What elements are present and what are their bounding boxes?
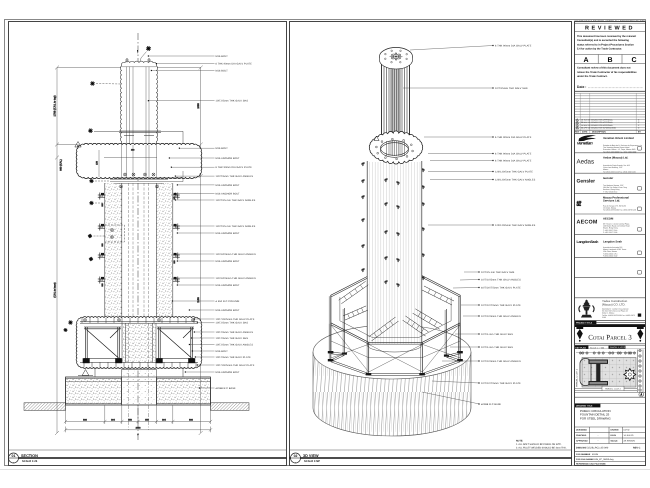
svg-text:120/T/5mm THK GALV ANGLES: 120/T/5mm THK GALV ANGLES <box>216 175 254 178</box>
svg-text:T +852 2508 3700: T +852 2508 3700 <box>603 190 617 193</box>
svg-text:10/T/25mm THK GALV SHS: 10/T/25mm THK GALV SHS <box>495 87 528 90</box>
svg-text:⌀2988 R.C BASE: ⌀2988 R.C BASE <box>481 403 502 406</box>
svg-text:DWG NO: DWG NO <box>576 447 586 450</box>
svg-text:28 MAY 10: 28 MAY 10 <box>581 121 590 124</box>
svg-text:6 THK 90mm DIA GALV PLATE: 6 THK 90mm DIA GALV PLATE <box>495 44 532 47</box>
svg-text:1788 (T.P.L to top): 1788 (T.P.L to top) <box>54 95 57 116</box>
svg-text:SCALE: SCALE <box>611 440 619 443</box>
svg-text:CAD NUMBER: CAD NUMBER <box>576 453 591 456</box>
svg-text:M16 ANCHOR BOLT: M16 ANCHOR BOLT <box>216 184 240 187</box>
svg-text:10/T/10/T/5mm THK GALV PLATE: 10/T/10/T/5mm THK GALV PLATE <box>481 304 521 307</box>
svg-text:Consultant review of this docu: Consultant review of this document does … <box>577 67 631 70</box>
svg-text:M16 ANCHOR BOLT: M16 ANCHOR BOLT <box>216 309 240 312</box>
svg-text:This document has been reviewe: This document has been reviewed by the r… <box>577 35 636 38</box>
svg-text:Date :: Date : <box>577 85 586 89</box>
svg-text:M16 ANCHOR BOLT: M16 ANCHOR BOLT <box>216 260 240 263</box>
svg-text:6 THK 90mm DIA GALV PLATE: 6 THK 90mm DIA GALV PLATE <box>495 152 532 155</box>
svg-text:120/120/5mm THK GALV PLATE: 120/120/5mm THK GALV PLATE <box>495 170 533 173</box>
svg-text:M16 BOLT: M16 BOLT <box>216 55 229 58</box>
svg-text:LangdonSeah: LangdonSeah <box>577 240 600 244</box>
svg-text:5152B: 5152B <box>592 453 599 456</box>
svg-text:120/T/25 mm THK GALV ANGLES: 120/T/25 mm THK GALV ANGLES <box>216 199 256 202</box>
svg-text:REV C: REV C <box>633 447 641 450</box>
svg-text:DESIGNED: DESIGNED <box>576 429 587 432</box>
svg-text:6 THK 90mm DIA GALV PLATE: 6 THK 90mm DIA GALV PLATE <box>495 136 532 139</box>
svg-text:SCALE 1:NP: SCALE 1:NP <box>304 460 320 463</box>
svg-text:M16 ANCHOR BOLT: M16 ANCHOR BOLT <box>216 232 240 235</box>
svg-text:Tel: (853) 2878 6283 Fax: (85: Tel: (853) 2878 6283 Fax: (853) 2878 622… <box>603 209 636 212</box>
svg-text:Venetian Orient Limited: Venetian Orient Limited <box>603 137 634 140</box>
svg-text:AECOM: AECOM <box>577 220 598 226</box>
svg-text:PARCEL 1 LOT 2: PARCEL 1 LOT 2 <box>605 388 621 391</box>
svg-text:1085: 1085 <box>197 103 200 109</box>
svg-text:120/120/5mm THK GALV ANGLES: 120/120/5mm THK GALV ANGLES <box>495 224 536 227</box>
svg-text:Langdon Seah: Langdon Seah <box>603 240 622 243</box>
svg-text:14 MAY 10: 14 MAY 10 <box>581 124 590 127</box>
svg-text:under the Trade Contract.: under the Trade Contract. <box>577 75 608 78</box>
svg-text:10/T/5 mm THK GALV SHS: 10/T/5 mm THK GALV SHS <box>481 333 513 336</box>
svg-text:Gensler: Gensler <box>603 177 614 180</box>
svg-text:10/T/25mm THK GALV ANGLES: 10/T/25mm THK GALV ANGLES <box>216 343 254 346</box>
svg-text:F +852 2317 7609: F +852 2317 7609 <box>603 231 617 234</box>
svg-text:Aedas (Macau) Ltd.: Aedas (Macau) Ltd. <box>603 157 628 160</box>
svg-text:2. ALL FILLET WELDED SHOULD BE: 2. ALL FILLET WELDED SHOULD BE 3mm THK. <box>516 446 567 449</box>
svg-text:2158: 2158 <box>197 297 200 303</box>
svg-text:10/T/25mm THK GALV SHS: 10/T/25mm THK GALV SHS <box>216 322 249 325</box>
svg-text:venetian: venetian <box>577 140 593 145</box>
svg-text:CHECKED: CHECKED <box>576 434 587 437</box>
svg-text:02: 02 <box>294 454 298 458</box>
svg-text:10/T/5 mm THK GALV SHS: 10/T/5 mm THK GALV SHS <box>481 346 513 349</box>
svg-text:2193: 2193 <box>602 316 606 319</box>
svg-text:DRAWN: DRAWN <box>611 429 619 432</box>
svg-text:APPROVED: APPROVED <box>576 440 588 443</box>
svg-text:10/T/25 mm THK GALV SHS: 10/T/25 mm THK GALV SHS <box>481 271 515 274</box>
svg-text:Aedas: Aedas <box>577 159 595 166</box>
svg-text:10/T/10/5mm THK GALV ANGLES: 10/T/10/5mm THK GALV ANGLES <box>481 360 521 363</box>
svg-text:5152B_PC_05090.dwg: 5152B_PC_05090.dwg <box>592 458 614 461</box>
svg-text:relieve the Trade Contractor o: relieve the Trade Contractor of his resp… <box>577 71 637 74</box>
svg-text:M16 BOLT: M16 BOLT <box>216 69 229 72</box>
svg-text:SECTION: SECTION <box>21 454 38 458</box>
svg-text:14 JUN 10: 14 JUN 10 <box>624 434 635 437</box>
svg-text:30 APR 10: 30 APR 10 <box>581 127 590 130</box>
svg-text:LWYD: LWYD <box>624 429 630 432</box>
svg-text:FOR STEEL DRAWING: FOR STEEL DRAWING <box>580 416 611 420</box>
svg-text:DATE: DATE <box>611 434 617 437</box>
svg-text:6 THK 90mm DIA GALV PLATE: 6 THK 90mm DIA GALV PLATE <box>216 63 253 66</box>
svg-text:120/T/25 mm THK GALV ANGLES: 120/T/25 mm THK GALV ANGLES <box>216 225 256 228</box>
svg-text:10/T/25mm THK GALV SHS: 10/T/25mm THK GALV SHS <box>216 337 249 340</box>
svg-text:10/T/25mm THK GALV PLATE: 10/T/25mm THK GALV PLATE <box>216 356 252 359</box>
svg-text:M16 BOLT: M16 BOLT <box>216 147 229 150</box>
svg-text:120/120/5mm THK GALV ANGLES: 120/120/5mm THK GALV ANGLES <box>216 253 257 256</box>
svg-text:(T.P.L to base): (T.P.L to base) <box>54 282 57 297</box>
svg-text:M16 ANCHOR BOLT: M16 ANCHOR BOLT <box>216 284 240 287</box>
svg-text:⌀2988 R.C BASE: ⌀2988 R.C BASE <box>216 387 237 390</box>
svg-text:1. ALL BOLT SHOULD BE FIXING O: 1. ALL BOLT SHOULD BE FIXING ON SITE. <box>516 443 562 446</box>
svg-text:Tel: (853) 2833 1113 Fax: (85: Tel: (853) 2833 1113 Fax: (853) 2833 111… <box>603 170 636 173</box>
svg-text:ISSUED FOR APPROVAL: ISSUED FOR APPROVAL <box>591 124 613 127</box>
svg-text:PARCEL 1, LOT 1: PARCEL 1, LOT 1 <box>576 368 579 386</box>
svg-text:5.4 for action by the Trade Co: 5.4 for action by the Trade Contractor. <box>577 48 622 51</box>
svg-text:CAD FILE NAME: CAD FILE NAME <box>576 458 593 461</box>
svg-text:ISSUED FOR APPROVAL: ISSUED FOR APPROVAL <box>591 119 613 122</box>
svg-text:NOTE:: NOTE: <box>516 440 523 443</box>
svg-text:M16 ANCHOR BOLT: M16 ANCHOR BOLT <box>216 157 240 160</box>
svg-text:860 (T.P.L): 860 (T.P.L) <box>60 159 63 171</box>
svg-text:ISSUED FOR INFORMATION: ISSUED FOR INFORMATION <box>591 127 617 130</box>
svg-text:120/120/5mm THK GALV ANGLES: 120/120/5mm THK GALV ANGLES <box>216 277 257 280</box>
svg-text:10/T/10/25mm THK GALV PLATE: 10/T/10/25mm THK GALV PLATE <box>216 364 255 367</box>
svg-text:10/T/10/T/5mm THK GALV PLATE: 10/T/10/T/5mm THK GALV PLATE <box>481 382 521 385</box>
svg-text:M16 BOLT: M16 BOLT <box>216 350 229 353</box>
svg-text:Consultant(s) and is accorded: Consultant(s) and is accorded the follow… <box>577 39 629 42</box>
svg-text:status referred to in Project: status referred to in Project Procedures… <box>577 43 634 46</box>
svg-text:-: - <box>295 460 296 464</box>
svg-text:6 THK 90mm DIA GALV PLATE: 6 THK 90mm DIA GALV PLATE <box>216 166 253 169</box>
svg-text:40/T/20/T/5mm THK GALV PLATE: 40/T/20/T/5mm THK GALV PLATE <box>481 286 521 289</box>
svg-text:120/120/5mm THK GALV ANGLES: 120/120/5mm THK GALV ANGLES <box>495 178 536 181</box>
svg-text:Gensler: Gensler <box>577 179 596 185</box>
svg-text:M16 ANCHOR BOLT: M16 ANCHOR BOLT <box>216 371 240 374</box>
svg-text:F (853) 2833 1532: F (853) 2833 1532 <box>603 254 617 257</box>
svg-text:AS SHOWN: AS SHOWN <box>624 440 636 443</box>
svg-text:01: 01 <box>12 454 16 458</box>
svg-text:SCALE 1:25: SCALE 1:25 <box>22 460 38 463</box>
svg-text:AECOM: AECOM <box>603 217 614 220</box>
svg-text:10/T/10/5mm THK GALV ANGLES: 10/T/10/5mm THK GALV ANGLES <box>481 278 521 281</box>
svg-text:Tel No: 00853-28752199 Fax: 0: Tel No: 00853-28752199 Fax: 00853-2875 <box>602 314 635 317</box>
svg-text:2988: 2988 <box>136 427 142 430</box>
svg-text:B: B <box>607 57 612 64</box>
svg-text:3D VIEW: 3D VIEW <box>303 454 319 458</box>
svg-text:5152B_PC2_05-090: 5152B_PC2_05-090 <box>587 447 609 450</box>
svg-text:10 JUN 10: 10 JUN 10 <box>581 119 590 122</box>
svg-text:M16 ANCHOR BOLT: M16 ANCHOR BOLT <box>216 192 240 195</box>
svg-text:DRAWING TITLE: DRAWING TITLE <box>576 405 593 408</box>
svg-text:Services Ltd.: Services Ltd. <box>603 200 620 203</box>
svg-text:ISSUED FOR APPROVAL: ISSUED FOR APPROVAL <box>591 121 613 124</box>
svg-text:REVIEWED: REVIEWED <box>585 26 635 32</box>
svg-text:C: C <box>631 57 636 64</box>
svg-text:10/T/25mm THK GALV SHS: 10/T/25mm THK GALV SHS <box>216 100 249 103</box>
svg-text:10/T/10/5mm THK GALV ANGLES: 10/T/10/5mm THK GALV ANGLES <box>481 315 521 318</box>
svg-text:A: A <box>583 57 588 64</box>
svg-text:⌀ 550 R.C COLUMN: ⌀ 550 R.C COLUMN <box>216 300 240 303</box>
svg-text:10/T/10/25mm THK GALV PLATE: 10/T/10/25mm THK GALV PLATE <box>216 318 255 321</box>
svg-text:6 THK 90mm DIA GALV PLATE: 6 THK 90mm DIA GALV PLATE <box>495 159 532 162</box>
svg-text:-: - <box>13 460 14 464</box>
svg-text:10/T/25mm THK GALV ANGLES: 10/T/25mm THK GALV ANGLES <box>216 331 254 334</box>
svg-text:(Macau) CO. LTD.: (Macau) CO. LTD. <box>602 302 626 306</box>
